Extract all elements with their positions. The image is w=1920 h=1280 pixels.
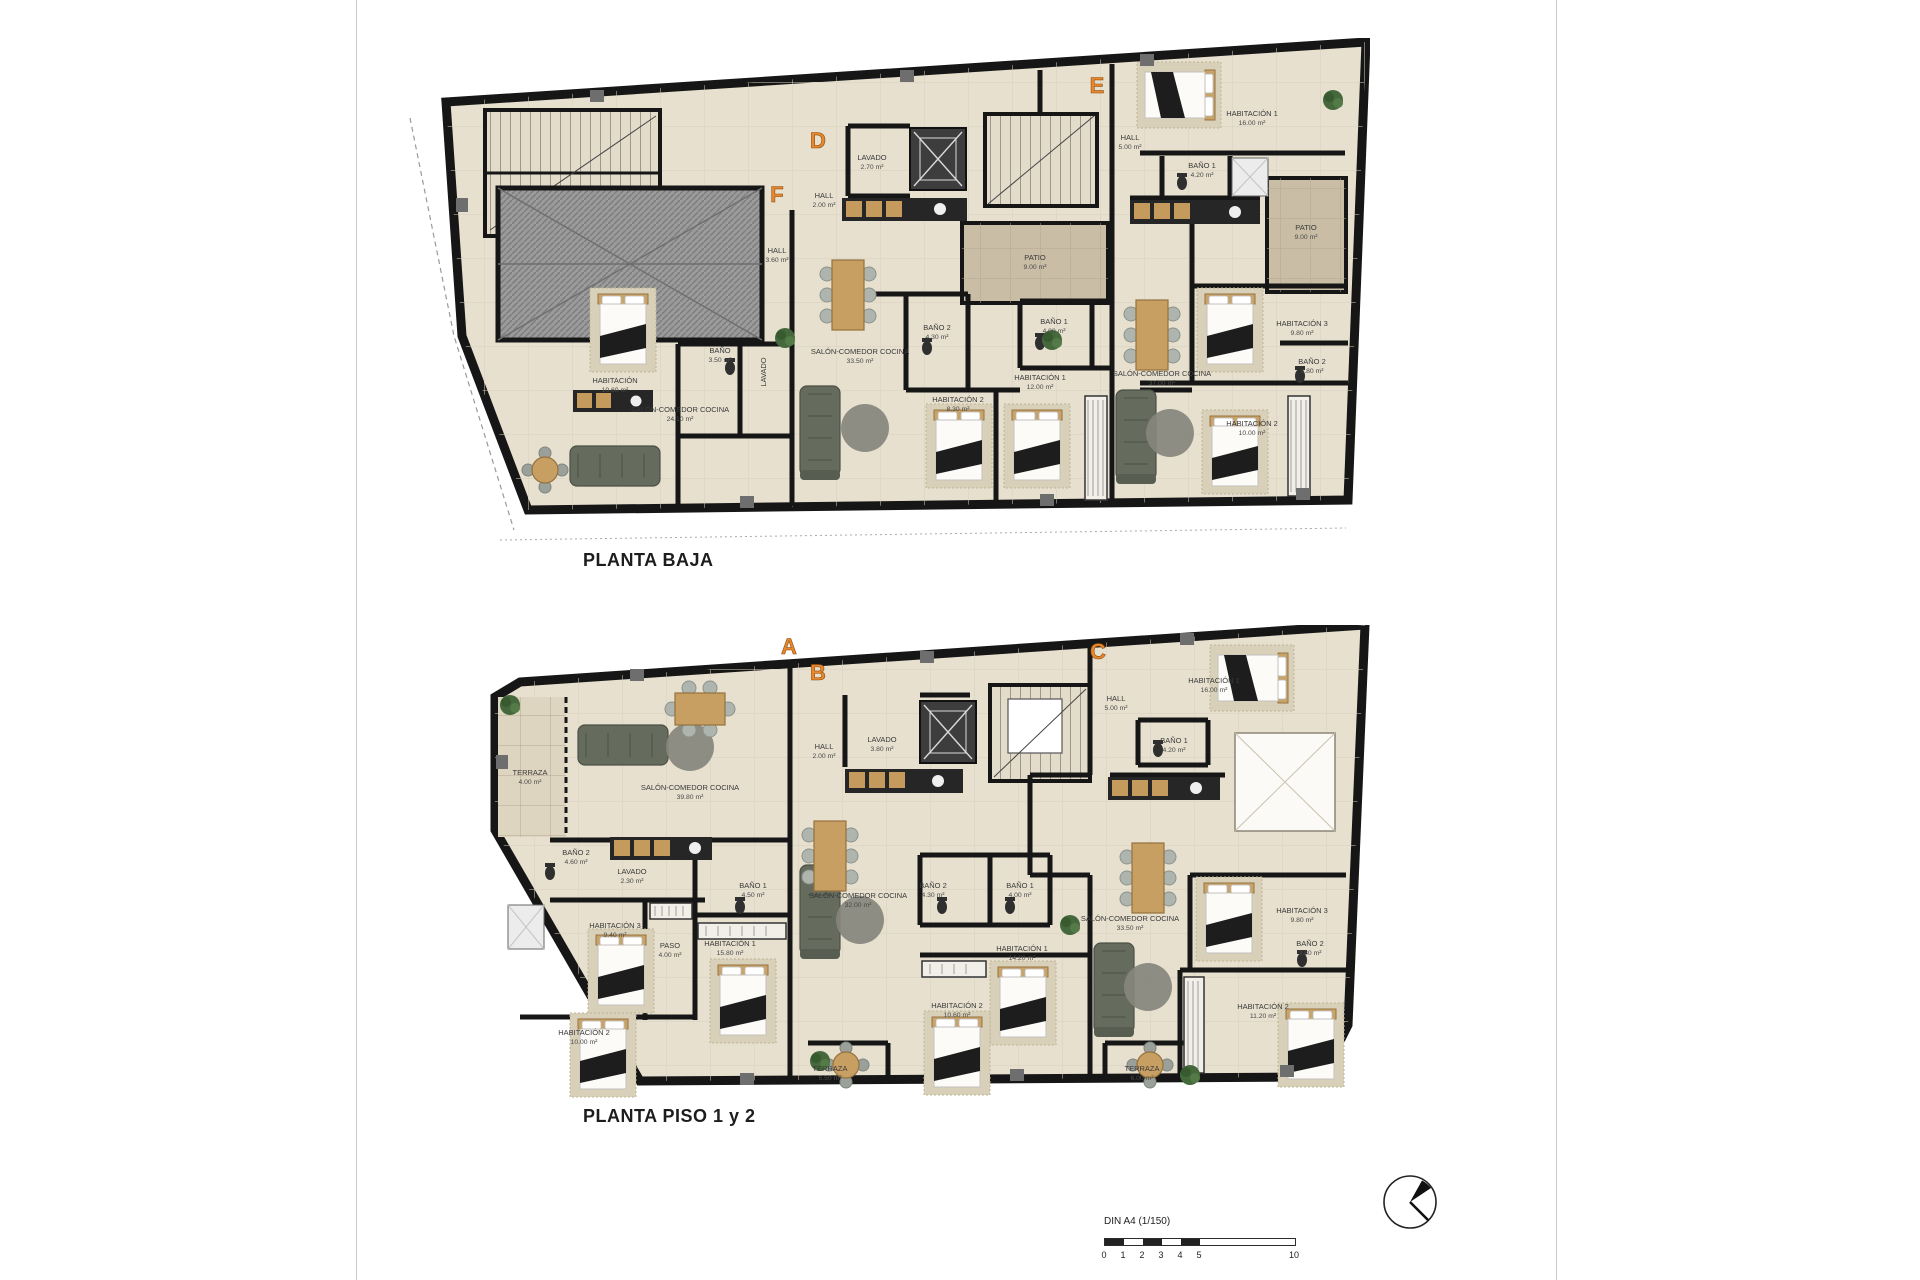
unit-letter-F: F xyxy=(770,182,783,207)
room-area: 32.00 m² xyxy=(845,902,873,909)
room-area: 24.10 m² xyxy=(667,416,695,423)
sofa xyxy=(570,446,660,486)
room-area: 9.80 m² xyxy=(1290,330,1314,337)
room-label: BAÑO 2 xyxy=(1296,939,1324,948)
bed xyxy=(570,1013,636,1097)
room-label: LAVADO xyxy=(759,357,768,386)
bed xyxy=(926,404,992,488)
room-area: 4.30 m² xyxy=(921,892,945,899)
dining-table xyxy=(820,260,876,330)
plant xyxy=(775,328,795,348)
scale-tick: 4 xyxy=(1177,1250,1182,1260)
room-label: SALÓN-COMEDOR COCINA xyxy=(1113,369,1211,378)
room-area: 10.00 m² xyxy=(571,1039,599,1046)
page-border-right xyxy=(1556,0,1557,1280)
room-area: 4.50 m² xyxy=(741,892,765,899)
room-area: 3.60 m² xyxy=(765,257,789,264)
sofa xyxy=(800,386,840,480)
room-label: BAÑO 2 xyxy=(919,881,947,890)
room-area: 2.00 m² xyxy=(812,202,836,209)
room-label: HALL xyxy=(815,191,834,200)
room-label: BAÑO xyxy=(709,346,730,355)
scale-label: DIN A4 (1/150) xyxy=(1104,1216,1170,1227)
floor-title-planta-piso: PLANTA PISO 1 y 2 xyxy=(583,1106,756,1127)
room-area: 4.60 m² xyxy=(564,859,588,866)
floor-title-planta-baja: PLANTA BAJA xyxy=(583,550,714,571)
page-border-left xyxy=(356,0,357,1280)
room-area: 4.30 m² xyxy=(925,334,949,341)
scale-tick: 0 xyxy=(1101,1250,1106,1260)
room-area: 39.80 m² xyxy=(677,794,705,801)
room-label: HABITACIÓN 1 xyxy=(996,944,1048,953)
room-label: BAÑO 1 xyxy=(1188,161,1216,170)
room-area: 8.30 m² xyxy=(946,406,970,413)
room-label: HABITACIÓN 2 xyxy=(1237,1002,1289,1011)
room-label: PATIO xyxy=(1024,253,1046,262)
scale-ticks: 01234510 xyxy=(1104,1250,1304,1262)
room-area: 10.60 m² xyxy=(944,1012,972,1019)
room-label: SALÓN-COMEDOR COCINA xyxy=(631,405,729,414)
room-label: HABITACIÓN 2 xyxy=(1226,419,1278,428)
room-label: LAVADO xyxy=(867,735,896,744)
room-area: 10.60 m² xyxy=(602,387,630,394)
bed xyxy=(588,929,654,1013)
room-area: 11.20 m² xyxy=(1250,1013,1277,1020)
unit-letter-D: D xyxy=(810,128,826,153)
room-label: HABITACIÓN 1 xyxy=(704,939,756,948)
room-label: HABITACIÓN 1 xyxy=(1188,676,1240,685)
room-area: 9.00 m² xyxy=(1023,264,1047,271)
scale-tick-end: 10 xyxy=(1289,1250,1299,1260)
scale-bar xyxy=(1104,1238,1296,1246)
dining-table xyxy=(1124,300,1180,370)
room-area: 33.50 m² xyxy=(847,358,875,365)
floor-plan-planta-baja: HABITACIÓN10.60 m²BAÑO3.50 m²LAVADOSALÓN… xyxy=(400,38,1370,558)
room-label: LAVADO xyxy=(857,153,886,162)
room-label: LAVADO xyxy=(617,867,646,876)
scale-tick: 2 xyxy=(1139,1250,1144,1260)
room-label: HABITACIÓN 2 xyxy=(932,395,984,404)
room-label: HABITACIÓN 2 xyxy=(558,1028,610,1037)
bed xyxy=(990,961,1056,1045)
toilet xyxy=(937,897,947,914)
room-area: 3.80 m² xyxy=(1298,950,1322,957)
plant xyxy=(1060,915,1080,935)
room-label: HALL xyxy=(1121,133,1140,142)
room-area: 15.80 m² xyxy=(717,950,745,957)
room-area: 16.00 m² xyxy=(1239,120,1267,127)
unit-letter-C: C xyxy=(1090,639,1106,664)
rug xyxy=(1124,963,1172,1011)
room-label: HABITACIÓN 3 xyxy=(1276,319,1328,328)
room-area: 5.50 m² xyxy=(818,1075,842,1082)
room-label: BAÑO 1 xyxy=(1006,881,1034,890)
sofa xyxy=(578,725,668,765)
bed xyxy=(1197,288,1263,372)
room-area: 3.50 m² xyxy=(708,357,732,364)
room-area: 4.00 m² xyxy=(518,779,542,786)
toilet xyxy=(1005,897,1015,914)
bed xyxy=(1137,62,1221,128)
room-label: BAÑO 2 xyxy=(1298,357,1326,366)
rug xyxy=(1146,409,1194,457)
room-label: SALÓN-COMEDOR COCINA xyxy=(641,783,739,792)
stairs xyxy=(990,685,1090,781)
floor-plan-planta-piso: TERRAZA4.00 m²SALÓN-COMEDOR COCINA39.80 … xyxy=(480,625,1380,1110)
scale-tick: 3 xyxy=(1158,1250,1163,1260)
room-label: TERRAZA xyxy=(1124,1064,1159,1073)
room-label: BAÑO 1 xyxy=(1160,736,1188,745)
room-area: 9.80 m² xyxy=(1290,917,1314,924)
room-label: HABITACIÓN 2 xyxy=(931,1001,983,1010)
room-label: BAÑO 2 xyxy=(562,848,590,857)
room-area: 4.20 m² xyxy=(1190,172,1214,179)
elevator xyxy=(910,128,966,190)
bed xyxy=(1196,877,1262,961)
room-area: 16.00 m² xyxy=(1201,687,1229,694)
room-label: SALÓN-COMEDOR COCINA xyxy=(811,347,909,356)
room-label: HABITACIÓN 3 xyxy=(1276,906,1328,915)
toilet xyxy=(735,897,745,914)
room-label: SALÓN-COMEDOR COCINA xyxy=(1081,914,1179,923)
room-area: 10.00 m² xyxy=(1239,430,1267,437)
lightwell xyxy=(1235,733,1335,831)
room-label: BAÑO 2 xyxy=(923,323,951,332)
bed xyxy=(710,959,776,1043)
room-label: SALÓN-COMEDOR COCINA xyxy=(809,891,907,900)
room-area: 4.00 m² xyxy=(658,952,682,959)
elevator xyxy=(920,701,976,763)
room-area: 2.00 m² xyxy=(812,753,836,760)
room-label: HABITACIÓN xyxy=(592,376,637,385)
room-area: 9.00 m² xyxy=(1294,234,1318,241)
room-area: 12.00 m² xyxy=(1027,384,1055,391)
plant xyxy=(1323,90,1343,110)
unit-letter-E: E xyxy=(1090,73,1105,98)
room-label: PASO xyxy=(660,941,680,950)
dining-table xyxy=(802,821,858,891)
room-label: HALL xyxy=(815,742,834,751)
room-label: HABITACIÓN 1 xyxy=(1014,373,1066,382)
terrace xyxy=(498,697,566,837)
toilet xyxy=(545,863,555,880)
toilet xyxy=(1177,173,1187,190)
room-area: 3.80 m² xyxy=(870,746,894,753)
unit-letter-B: B xyxy=(810,660,826,685)
room-label: BAÑO 1 xyxy=(739,881,767,890)
plant xyxy=(1180,1065,1200,1085)
room-area: 2.30 m² xyxy=(620,878,644,885)
scale-tick: 5 xyxy=(1196,1250,1201,1260)
site-underline-dotted xyxy=(500,528,1346,540)
plant xyxy=(500,695,520,715)
bed xyxy=(590,288,656,372)
patio xyxy=(962,223,1108,303)
room-label: TERRAZA xyxy=(812,1064,847,1073)
room-area: 33.50 m² xyxy=(1117,925,1145,932)
room-area: 3.80 m² xyxy=(1300,368,1324,375)
bed xyxy=(1004,404,1070,488)
room-label: HALL xyxy=(768,246,787,255)
north-indicator xyxy=(1378,1172,1442,1241)
room-area: 14.20 m² xyxy=(1009,955,1037,962)
room-label: BAÑO 1 xyxy=(1040,317,1068,326)
room-area: 4.00 m² xyxy=(1008,892,1032,899)
room-area: 9.40 m² xyxy=(603,932,627,939)
room-label: HABITACIÓN 1 xyxy=(1226,109,1278,118)
room-area: 4.00 m² xyxy=(1042,328,1066,335)
room-label: PATIO xyxy=(1295,223,1317,232)
rug xyxy=(841,404,889,452)
room-area: 2.70 m² xyxy=(860,164,884,171)
room-label: TERRAZA xyxy=(512,768,547,777)
unit-letter-A: A xyxy=(781,634,797,659)
room-area: 4.20 m² xyxy=(1162,747,1186,754)
room-label: HALL xyxy=(1107,694,1126,703)
room-area: 6.00 m² xyxy=(1130,1075,1154,1082)
dining-table xyxy=(1120,843,1176,913)
room-area: 5.00 m² xyxy=(1104,705,1128,712)
scale-tick: 1 xyxy=(1120,1250,1125,1260)
room-area: 5.00 m² xyxy=(1118,144,1142,151)
room-label: HABITACIÓN 3 xyxy=(589,921,641,930)
room-area: 37.00 m² xyxy=(1149,380,1177,387)
sheet: HABITACIÓN10.60 m²BAÑO3.50 m²LAVADOSALÓN… xyxy=(0,0,1920,1280)
bed xyxy=(924,1011,990,1095)
stairs xyxy=(985,114,1097,206)
